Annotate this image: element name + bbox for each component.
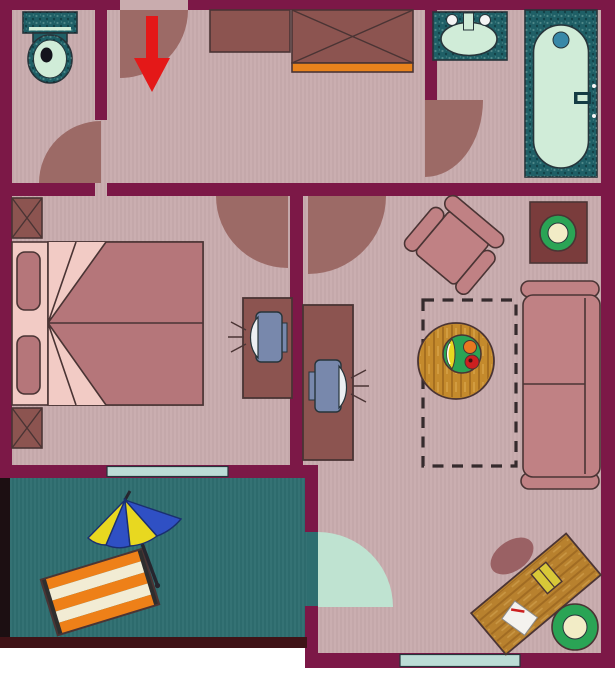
cabinet-body [210,10,290,52]
balcony-rail-left [0,478,10,648]
floor-entrance-threshold [120,0,188,10]
floor-plan-stage [0,0,615,700]
double-bed[interactable] [12,242,203,405]
plant-table[interactable] [530,202,587,263]
study-bottom-window [400,655,520,667]
orange-fruit [464,341,477,354]
wardrobe[interactable] [292,10,413,72]
plant-pot-center [548,223,568,243]
nightstand-bottom[interactable] [12,408,42,448]
wall-fitting-dot [592,114,596,118]
wardrobe-front-rail [292,63,413,72]
wall-outer-right [601,0,615,668]
floor-balcony-door-gap [307,532,318,607]
stool[interactable] [552,604,598,650]
bathtub[interactable] [525,10,597,177]
hallway-cabinet[interactable] [210,10,290,52]
wall-top-left [0,0,120,10]
sink[interactable] [433,12,507,60]
computer-monitor[interactable] [256,312,282,362]
sink-knob-left [447,15,458,26]
toilet-tank-trim [29,27,71,31]
balcony-rail-bottom [0,637,307,648]
bed-pillow-top [17,252,40,310]
bed-pillow-bottom [17,336,40,394]
apple [465,355,479,369]
wall-fitting-dot [592,84,596,88]
coffee-table[interactable] [418,323,494,399]
umbrella-pole-tip [155,583,160,588]
wall-hallway-south-right [107,183,601,196]
bathtub-drain [553,32,569,48]
wall-balcony-study-upper [305,478,318,532]
computer-monitor[interactable] [315,360,341,412]
sofa[interactable] [521,281,600,489]
nightstand-top[interactable] [12,198,42,238]
sink-faucet [464,13,474,30]
stool-seat-center [563,615,587,639]
bathtub-handle [578,95,588,101]
bedroom-balcony-window [107,467,228,477]
wall-hallway-south-left [0,183,95,196]
wall-outer-left [0,0,12,478]
toilet-drain [41,48,53,63]
wall-wc-hallway [95,10,107,120]
sofa-body [523,295,600,477]
toilet[interactable] [23,12,77,83]
sink-knob-right [480,15,491,26]
apple-stem [469,359,473,363]
floor-plan-canvas [0,0,615,700]
wall-top-right [188,0,601,10]
